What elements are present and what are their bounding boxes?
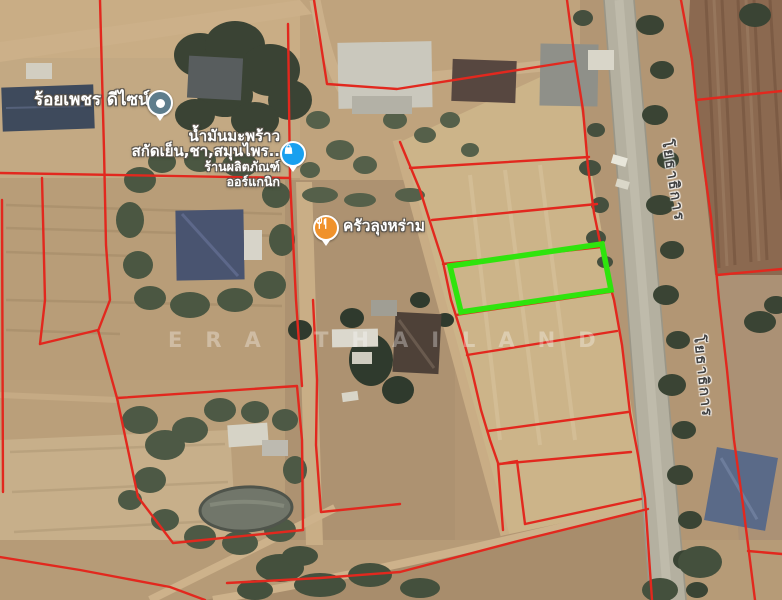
poi-label-design-shop[interactable]: ร้อยเพชร ดีไซน์ — [34, 92, 150, 109]
poi-title-line2: สกัดเย็น,ชา,สมุนไพร.. — [96, 144, 280, 159]
pin-pointer — [288, 165, 298, 172]
pin-pointer — [321, 239, 331, 246]
poi-label-coconut-oil-shop[interactable]: น้ำมันมะพร้าว สกัดเย็น,ชา,สมุนไพร.. ร้าน… — [96, 129, 280, 188]
poi-pin-restaurant[interactable] — [313, 215, 339, 248]
shopping-bag-icon — [280, 141, 306, 167]
poi-pin-coconut-oil-shop[interactable] — [280, 141, 306, 174]
generic-place-pin-icon — [147, 90, 173, 116]
poi-subtitle-line1: ร้านผลิตภัณฑ์ — [96, 161, 280, 174]
map-canvas[interactable]: ERA THAILAND ร้อยเพชร ดีไซน์ น้ำมันมะพร้… — [0, 0, 782, 600]
restaurant-fork-knife-icon — [313, 215, 339, 241]
pin-pointer — [155, 114, 165, 121]
poi-label-restaurant[interactable]: ครัวลุงหร่าม — [343, 219, 425, 235]
brand-watermark: ERA THAILAND — [168, 328, 619, 352]
parcel-boundary-line — [2, 200, 3, 492]
poi-subtitle-line2: ออร์แกนิก — [96, 176, 280, 189]
poi-pin-design-shop[interactable] — [147, 90, 173, 123]
